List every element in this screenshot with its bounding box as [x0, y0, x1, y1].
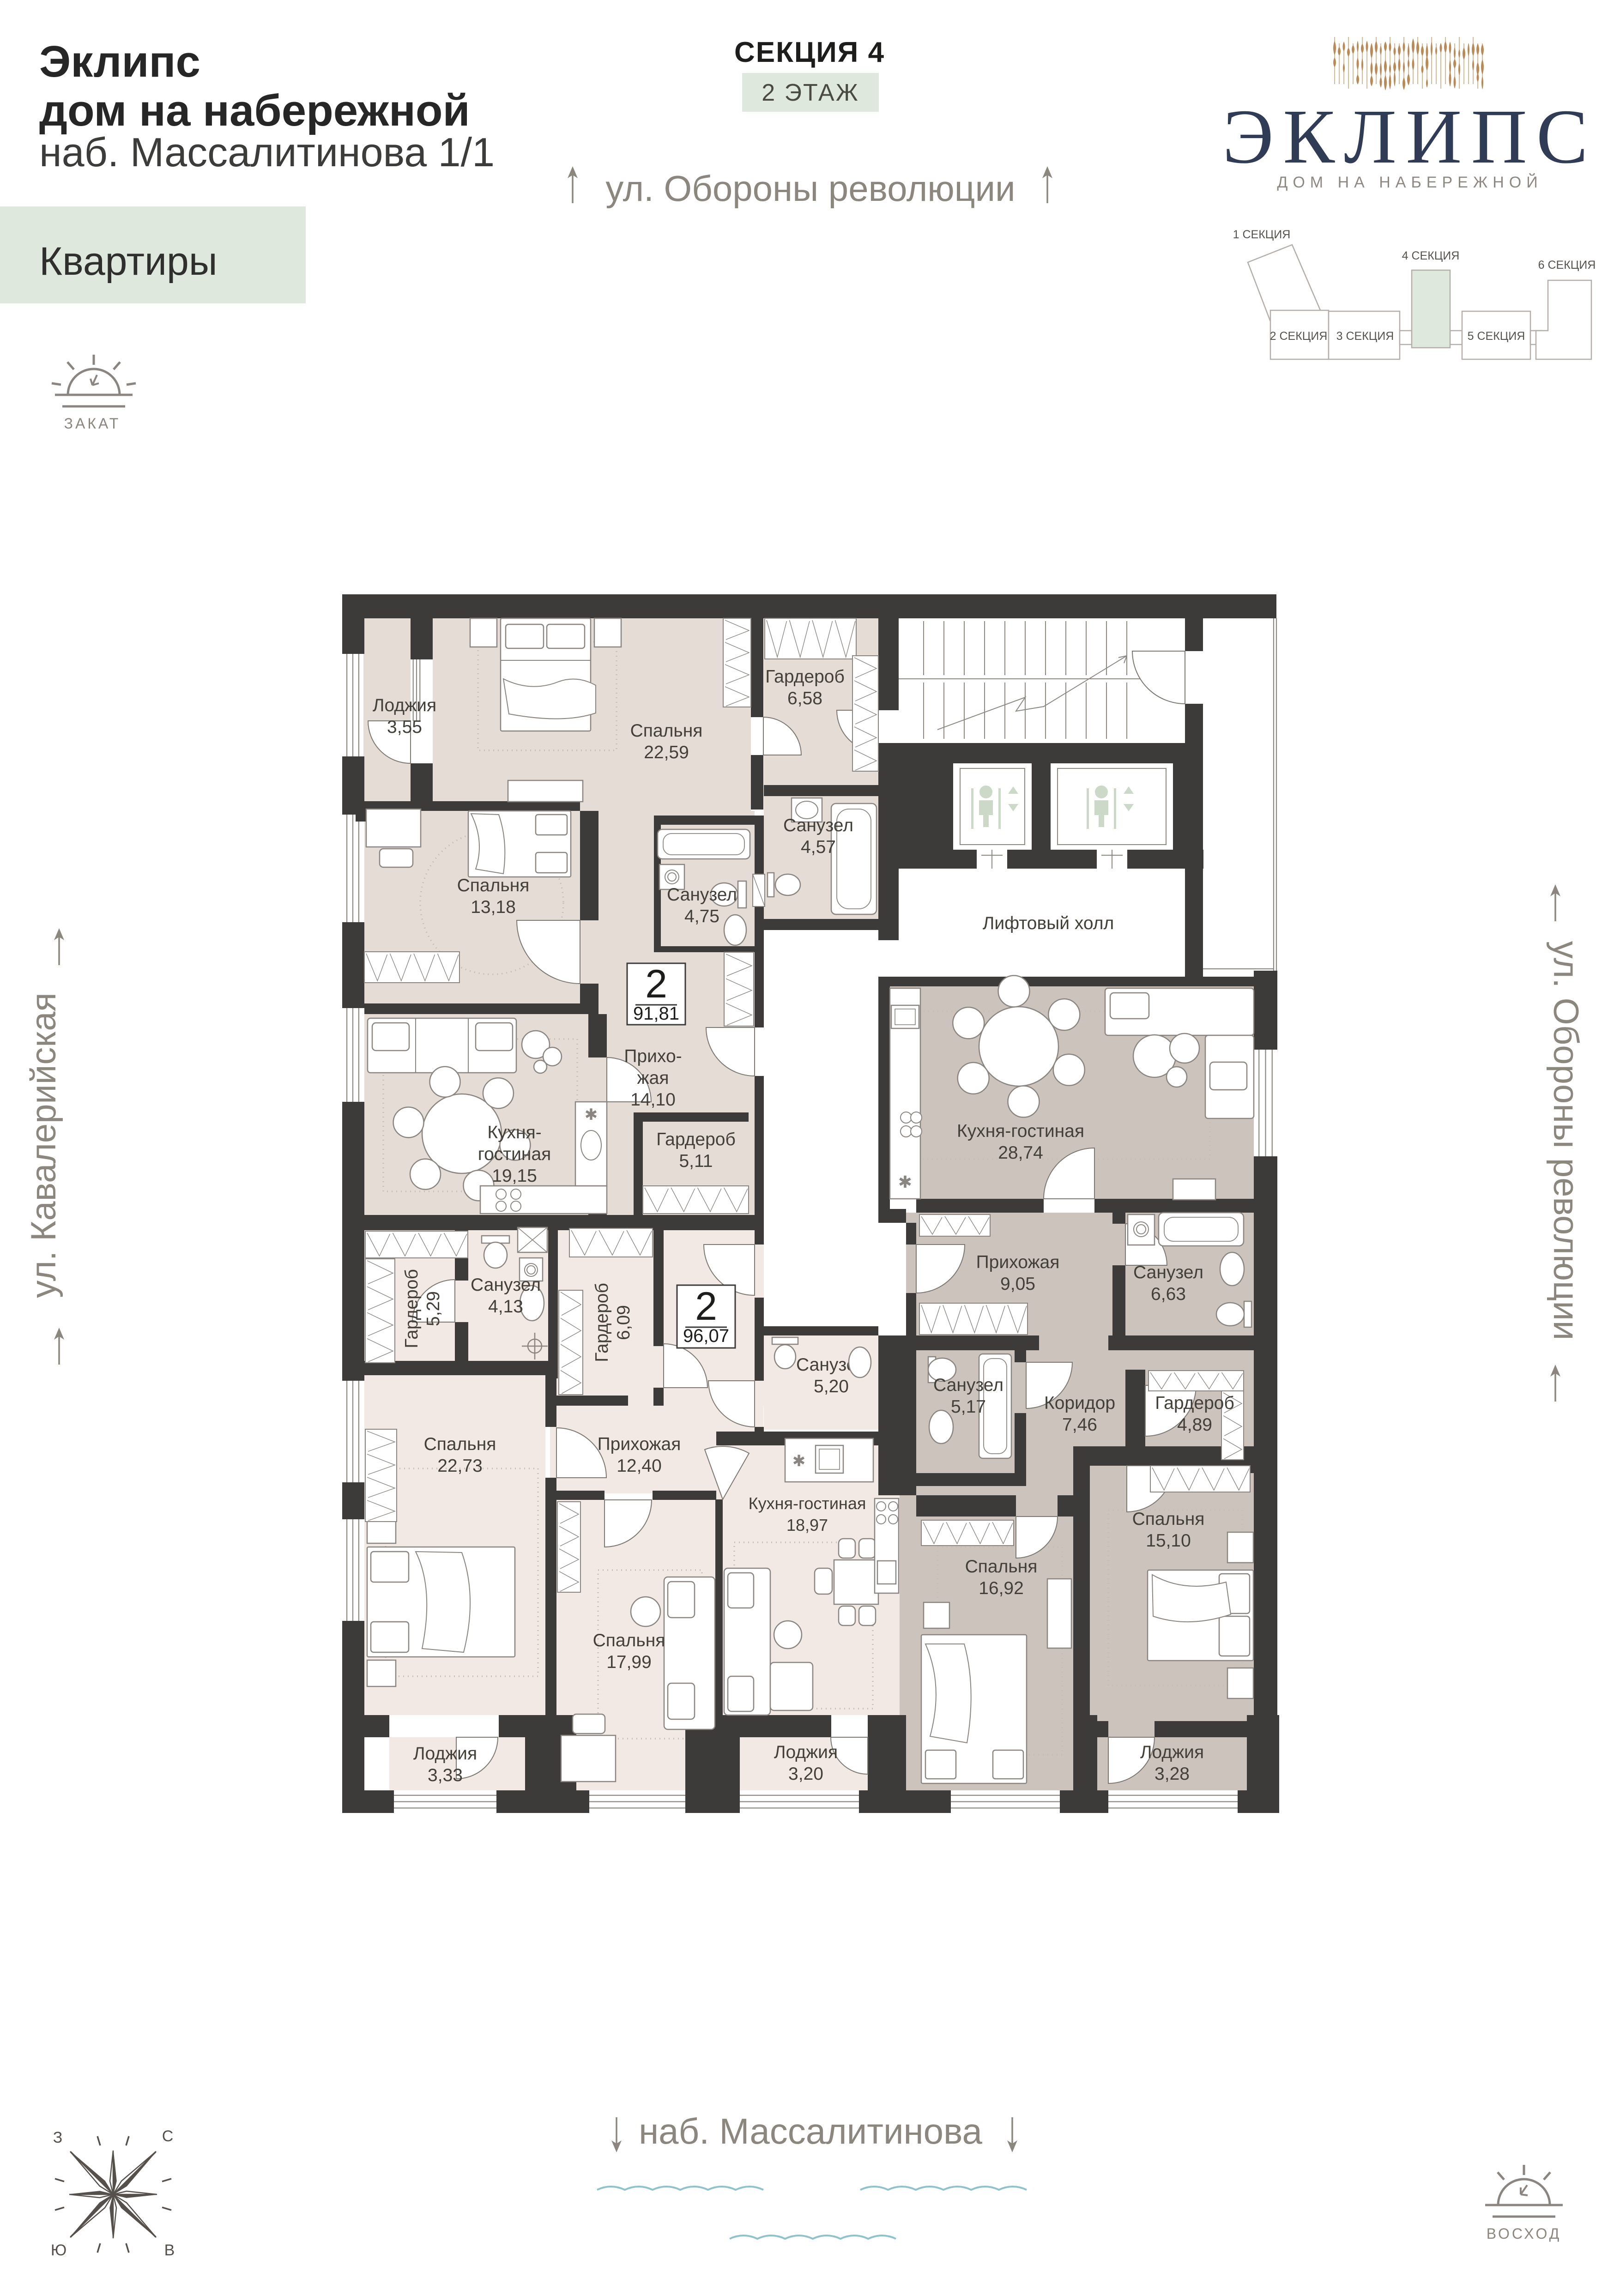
svg-text:Спальня: Спальня — [593, 1631, 665, 1650]
svg-text:Лифтовый холл: Лифтовый холл — [983, 913, 1114, 933]
svg-text:ЭКЛИПС: ЭКЛИПС — [1222, 94, 1597, 180]
svg-text:Лоджия: Лоджия — [774, 1742, 838, 1762]
svg-text:Прихо-: Прихо- — [624, 1046, 682, 1066]
svg-text:Спальня: Спальня — [457, 876, 530, 895]
svg-text:✱: ✱ — [585, 1106, 598, 1124]
svg-text:Гардероб: Гардероб — [1155, 1393, 1234, 1413]
svg-text:19,15: 19,15 — [492, 1166, 537, 1186]
svg-text:Прихожая: Прихожая — [598, 1434, 681, 1454]
svg-text:22,73: 22,73 — [437, 1456, 483, 1476]
svg-text:Спальня: Спальня — [1132, 1509, 1205, 1529]
svg-text:Гардероб: Гардероб — [402, 1269, 422, 1348]
svg-text:3,28: 3,28 — [1155, 1764, 1190, 1784]
svg-text:Прихожая: Прихожая — [976, 1252, 1060, 1272]
svg-text:Гардероб: Гардероб — [765, 667, 845, 687]
svg-text:3 СЕКЦИЯ: 3 СЕКЦИЯ — [1336, 330, 1394, 343]
svg-text:Санузел: Санузел — [933, 1375, 1003, 1395]
svg-text:Квартиры: Квартиры — [39, 239, 218, 284]
svg-text:Санузел: Санузел — [667, 885, 737, 905]
svg-text:Кухня-гостиная: Кухня-гостиная — [749, 1494, 866, 1513]
svg-text:5,17: 5,17 — [951, 1397, 986, 1417]
svg-text:З: З — [53, 2129, 63, 2146]
svg-text:2: 2 — [645, 962, 667, 1006]
svg-text:6 СЕКЦИЯ: 6 СЕКЦИЯ — [1538, 259, 1596, 272]
svg-text:17,99: 17,99 — [606, 1652, 652, 1672]
svg-text:18,97: 18,97 — [786, 1516, 828, 1535]
svg-text:Лоджия: Лоджия — [413, 1744, 477, 1764]
svg-text:12,40: 12,40 — [617, 1456, 662, 1476]
svg-text:5,11: 5,11 — [679, 1151, 713, 1171]
svg-text:6,58: 6,58 — [787, 689, 822, 708]
svg-text:ВОСХОД: ВОСХОД — [1487, 2225, 1562, 2242]
svg-text:5,20: 5,20 — [814, 1377, 849, 1396]
svg-text:Санузел: Санузел — [471, 1275, 541, 1295]
svg-text:дом на набережной: дом на набережной — [39, 86, 470, 135]
svg-text:15,10: 15,10 — [1146, 1531, 1191, 1551]
svg-text:4 СЕКЦИЯ: 4 СЕКЦИЯ — [1402, 249, 1460, 262]
svg-text:3,33: 3,33 — [428, 1765, 463, 1785]
svg-text:2 ЭТАЖ: 2 ЭТАЖ — [762, 79, 859, 106]
svg-text:16,92: 16,92 — [979, 1578, 1024, 1598]
svg-text:гостиная: гостиная — [478, 1144, 551, 1164]
svg-text:Спальня: Спальня — [630, 721, 703, 741]
svg-text:4,89: 4,89 — [1177, 1415, 1212, 1435]
svg-text:5,29: 5,29 — [423, 1291, 443, 1326]
svg-text:Кухня-гостиная: Кухня-гостиная — [957, 1121, 1084, 1141]
svg-text:Кухня-: Кухня- — [487, 1123, 541, 1142]
svg-text:2 СЕКЦИЯ: 2 СЕКЦИЯ — [1270, 330, 1328, 343]
svg-text:В: В — [164, 2242, 175, 2259]
svg-text:22,59: 22,59 — [644, 743, 689, 762]
svg-text:Лоджия: Лоджия — [1140, 1742, 1204, 1762]
svg-text:7,46: 7,46 — [1062, 1415, 1097, 1435]
svg-text:13,18: 13,18 — [471, 897, 516, 917]
svg-text:ДОМ НА НАБЕРЕЖНОЙ: ДОМ НА НАБЕРЕЖНОЙ — [1277, 174, 1542, 191]
svg-text:4,75: 4,75 — [684, 906, 719, 926]
svg-text:91,81: 91,81 — [633, 1003, 679, 1024]
svg-text:Ю: Ю — [51, 2242, 66, 2259]
svg-text:ул. Обороны революции: ул. Обороны революции — [1546, 941, 1585, 1341]
svg-text:жая: жая — [637, 1068, 669, 1088]
svg-text:СЕКЦИЯ 4: СЕКЦИЯ 4 — [734, 36, 885, 68]
svg-text:5 СЕКЦИЯ: 5 СЕКЦИЯ — [1468, 330, 1525, 343]
svg-text:9,05: 9,05 — [1000, 1274, 1035, 1294]
svg-text:Лоджия: Лоджия — [373, 695, 436, 715]
svg-text:✱: ✱ — [898, 1172, 912, 1191]
svg-text:2: 2 — [695, 1284, 717, 1329]
svg-text:Спальня: Спальня — [965, 1557, 1038, 1577]
svg-text:наб. Массалитинова: наб. Массалитинова — [639, 2111, 982, 2151]
svg-text:Эклипс: Эклипс — [39, 37, 200, 86]
svg-text:96,07: 96,07 — [683, 1326, 729, 1346]
svg-text:28,74: 28,74 — [998, 1143, 1043, 1163]
svg-text:✱: ✱ — [792, 1452, 806, 1470]
svg-text:3,20: 3,20 — [788, 1764, 823, 1784]
svg-text:Гардероб: Гардероб — [592, 1283, 612, 1362]
svg-text:6,09: 6,09 — [614, 1305, 634, 1340]
svg-text:Гардероб: Гардероб — [656, 1130, 736, 1149]
svg-text:Санузел: Санузел — [1133, 1263, 1203, 1282]
svg-text:наб. Массалитинова 1/1: наб. Массалитинова 1/1 — [39, 129, 495, 175]
svg-text:4,13: 4,13 — [488, 1297, 523, 1317]
svg-text:С: С — [162, 2127, 174, 2145]
svg-text:6,63: 6,63 — [1151, 1284, 1186, 1304]
svg-text:4,57: 4,57 — [801, 837, 836, 857]
svg-text:ул. Обороны революции: ул. Обороны революции — [605, 168, 1015, 209]
svg-text:ЗАКАТ: ЗАКАТ — [64, 415, 121, 432]
svg-text:3,55: 3,55 — [387, 717, 422, 737]
svg-text:ул. Кавалерийская: ул. Кавалерийская — [24, 992, 63, 1298]
svg-text:Спальня: Спальня — [424, 1434, 496, 1454]
svg-text:Коридор: Коридор — [1044, 1393, 1115, 1413]
svg-text:Санузел: Санузел — [783, 816, 853, 835]
svg-text:1 СЕКЦИЯ: 1 СЕКЦИЯ — [1233, 228, 1291, 241]
svg-text:14,10: 14,10 — [630, 1090, 676, 1110]
